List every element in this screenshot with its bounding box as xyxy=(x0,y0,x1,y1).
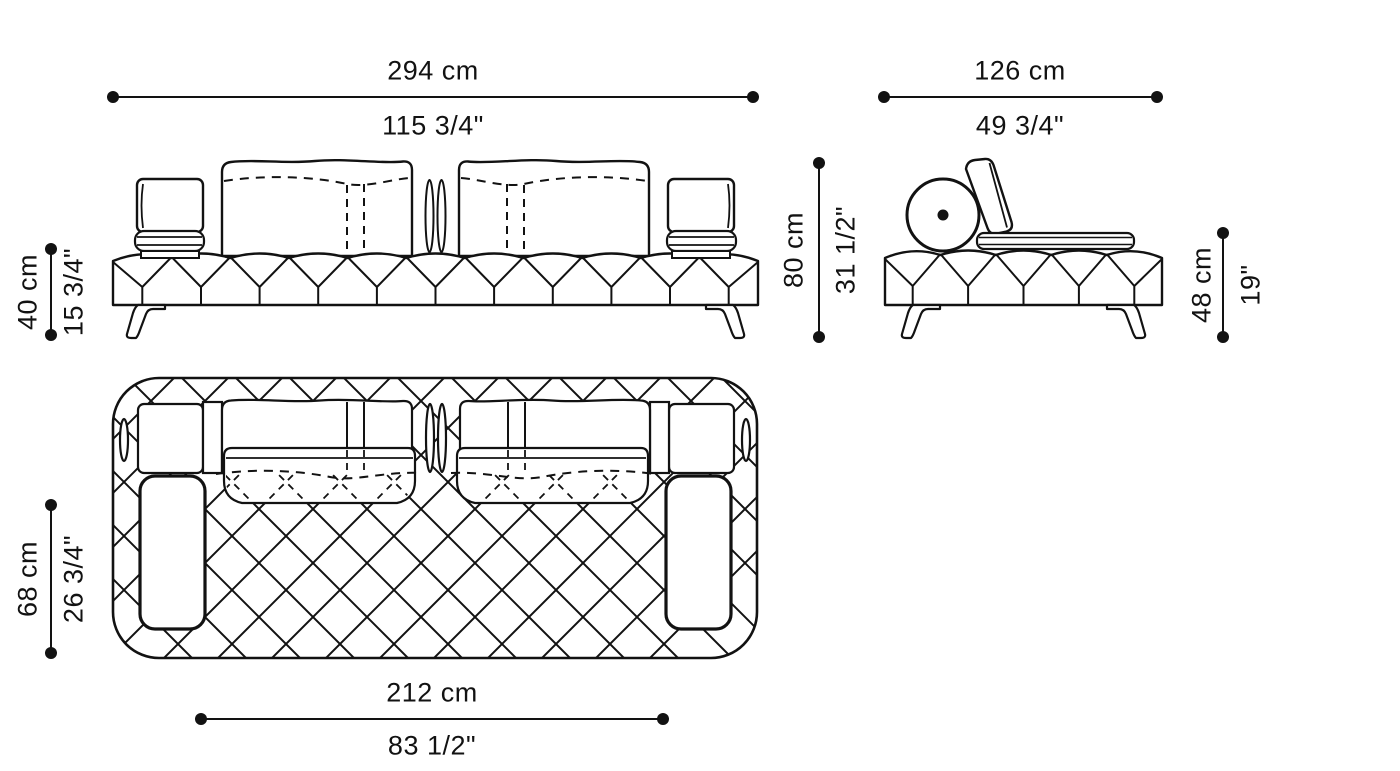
sofa-leg xyxy=(1107,305,1145,338)
dimension-endpoint xyxy=(1217,227,1229,239)
sofa-leg xyxy=(902,305,940,338)
dim-overall-width-in: 115 3/4" xyxy=(382,111,484,142)
armrest-front xyxy=(135,179,204,258)
dim-seat-width-cm: 212 cm xyxy=(386,678,478,709)
side-elevation-drawing xyxy=(885,159,1162,338)
dimension-endpoint xyxy=(1151,91,1163,103)
dimension-endpoint xyxy=(45,243,57,255)
dim-seat-width-in: 83 1/2" xyxy=(388,731,476,762)
dimension-endpoint xyxy=(813,331,825,343)
dim-overall-width-cm: 294 cm xyxy=(387,56,479,87)
dimension-endpoint xyxy=(1217,331,1229,343)
dim-overall-height-cm: 80 cm xyxy=(779,212,810,288)
dim-overall-height-in: 31 1/2" xyxy=(831,206,862,294)
dim-overall-depth-cm: 126 cm xyxy=(974,56,1066,87)
armrest-front-right xyxy=(667,179,736,258)
plan-view-drawing xyxy=(0,374,1226,666)
dimension-endpoint xyxy=(878,91,890,103)
bolster-button xyxy=(938,210,949,221)
dimension-endpoint xyxy=(45,647,57,659)
dim-cushion-depth-cm: 68 cm xyxy=(13,541,44,617)
dimension-endpoint xyxy=(45,499,57,511)
sofa-line-art xyxy=(0,0,1400,771)
dimension-endpoint xyxy=(107,91,119,103)
dimension-endpoint xyxy=(813,157,825,169)
dim-arm-height-cm: 48 cm xyxy=(1187,247,1218,323)
dimension-endpoint xyxy=(747,91,759,103)
dimension-endpoint xyxy=(45,329,57,341)
front-elevation-drawing xyxy=(113,160,758,338)
technical-drawing-sheet: 294 cm 115 3/4" 126 cm 49 3/4" 40 cm 15 … xyxy=(0,0,1400,771)
dim-seat-height-in: 15 3/4" xyxy=(59,248,90,336)
dim-overall-depth-in: 49 3/4" xyxy=(976,111,1064,142)
dimension-endpoint xyxy=(657,713,669,725)
dim-cushion-depth-in: 26 3/4" xyxy=(59,535,90,623)
dim-seat-height-cm: 40 cm xyxy=(13,254,44,330)
dim-arm-height-in: 19" xyxy=(1236,264,1267,305)
sofa-leg xyxy=(127,305,165,338)
dimension-endpoint xyxy=(195,713,207,725)
sofa-leg xyxy=(706,305,744,338)
